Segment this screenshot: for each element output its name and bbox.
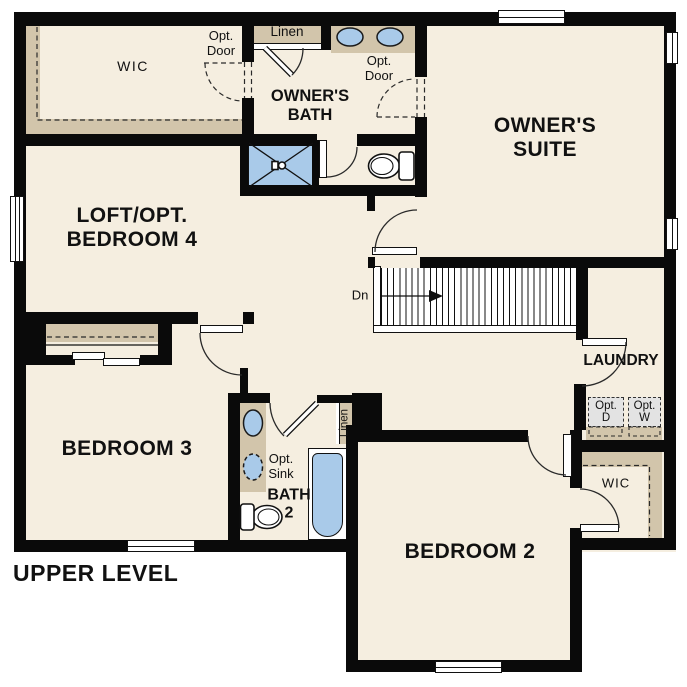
room-label-laundry: LAUNDRY: [583, 352, 658, 370]
label-linen-top: Linen: [270, 24, 303, 40]
label-stairs-down: Dn: [352, 289, 369, 304]
floor-plan-upper-level: Opt. D Opt. W .dash{fill:none;stroke:#2a…: [0, 0, 687, 687]
double-vanity-sinks-icon: [337, 28, 403, 46]
bath2-door: [270, 403, 317, 436]
room-label-owners-bath: OWNER'S BATH: [271, 87, 349, 125]
optional-door-wic: [204, 62, 252, 101]
room-label-owners-suite: OWNER'S SUITE: [494, 114, 596, 162]
room-label-wic-main: WIC: [117, 58, 149, 74]
room-label-bedroom2: BEDROOM 2: [405, 540, 536, 564]
owners-toilet-icon: [369, 152, 415, 180]
bedroom3-door-arc: [200, 333, 242, 375]
page-title-upper-level: UPPER LEVEL: [13, 560, 178, 586]
room-label-bath2: BATH 2: [267, 486, 310, 521]
bath2-optional-sink-icon: [244, 454, 263, 480]
stairs-down-arrow: [382, 290, 443, 302]
optional-door-owners-suite: [377, 79, 425, 117]
owners-suite-door-arc: [375, 210, 417, 252]
laundry-counter-dashes: [589, 427, 660, 436]
room-label-loft: LOFT/OPT. BEDROOM 4: [67, 204, 198, 252]
label-opt-door-wic: Opt. Door: [207, 29, 235, 59]
bedroom3-closet-lines: [46, 337, 158, 345]
room-label-wic2: WIC: [602, 477, 630, 492]
label-opt-door-suite: Opt. Door: [365, 54, 393, 84]
linen-door: [265, 48, 303, 75]
label-linen-bath2: Linen: [338, 409, 351, 437]
shower-icon: [249, 143, 313, 187]
bedroom2-door-arc: [528, 436, 566, 475]
bath2-sink-icon: [244, 410, 263, 436]
toilet-room-door-arc: [327, 147, 357, 177]
label-opt-sink: Opt. Sink: [268, 452, 293, 482]
wic2-door-arc: [580, 489, 619, 528]
room-label-bedroom3: BEDROOM 3: [62, 437, 193, 461]
